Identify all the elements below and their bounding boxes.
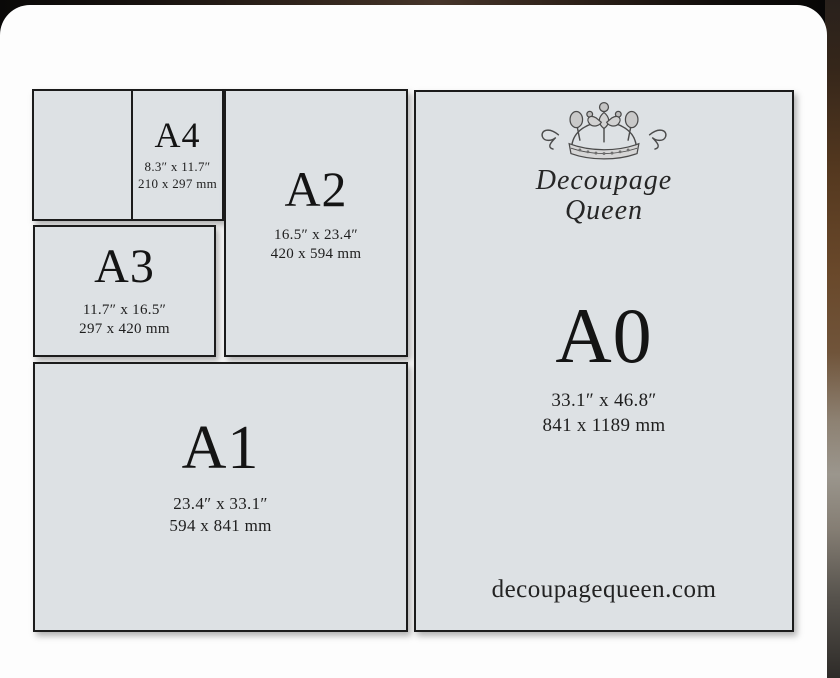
a2-label: A2 [284, 164, 347, 214]
brand-line1: Decoupage [416, 166, 792, 196]
paper-a3-cell: A3 11.7″ x 16.5″ 297 x 420 mm [33, 225, 216, 357]
a2-dimensions: 16.5″ x 23.4″ 420 x 594 mm [271, 226, 362, 265]
a0-mm: 841 x 1189 mm [416, 414, 792, 439]
a3-label: A3 [94, 243, 155, 291]
a3-mm: 297 x 420 mm [79, 320, 170, 340]
a1-inches: 23.4″ x 33.1″ [169, 493, 271, 515]
photo-background-right [825, 0, 840, 678]
a4-dimensions: 8.3″ x 11.7″ 210 x 297 mm [138, 159, 217, 193]
a0-label: A0 [416, 297, 792, 375]
paper-row-a5-a4: A4 8.3″ x 11.7″ 210 x 297 mm [32, 89, 224, 221]
a1-dimensions: 23.4″ x 33.1″ 594 x 841 mm [169, 493, 271, 537]
paper-size-chart-image: A4 8.3″ x 11.7″ 210 x 297 mm A3 11.7″ x … [0, 0, 840, 678]
brand-name: Decoupage Queen [416, 166, 792, 226]
crown-icon [537, 99, 671, 167]
a2-inches: 16.5″ x 23.4″ [271, 226, 362, 246]
brand-website: decoupagequeen.com [416, 576, 792, 604]
a2-mm: 420 x 594 mm [271, 245, 362, 265]
a4-mm: 210 x 297 mm [138, 176, 217, 193]
a0-inches: 33.1″ x 46.8″ [416, 389, 792, 414]
a3-inches: 11.7″ x 16.5″ [79, 301, 170, 321]
a1-label: A1 [182, 417, 260, 479]
a0-dimensions: 33.1″ x 46.8″ 841 x 1189 mm [416, 389, 792, 438]
paper-a4-cell: A4 8.3″ x 11.7″ 210 x 297 mm [131, 91, 222, 219]
paper-a0-cell: Decoupage Queen A0 33.1″ x 46.8″ 841 x 1… [414, 90, 794, 632]
a3-dimensions: 11.7″ x 16.5″ 297 x 420 mm [79, 301, 170, 340]
a4-inches: 8.3″ x 11.7″ [138, 159, 217, 176]
paper-a5-cell [34, 91, 131, 219]
brand-line2: Queen [416, 196, 792, 226]
paper-a2-cell: A2 16.5″ x 23.4″ 420 x 594 mm [224, 89, 408, 357]
a4-label: A4 [155, 117, 201, 153]
a1-mm: 594 x 841 mm [169, 515, 271, 537]
paper-a1-cell: A1 23.4″ x 33.1″ 594 x 841 mm [33, 362, 408, 632]
